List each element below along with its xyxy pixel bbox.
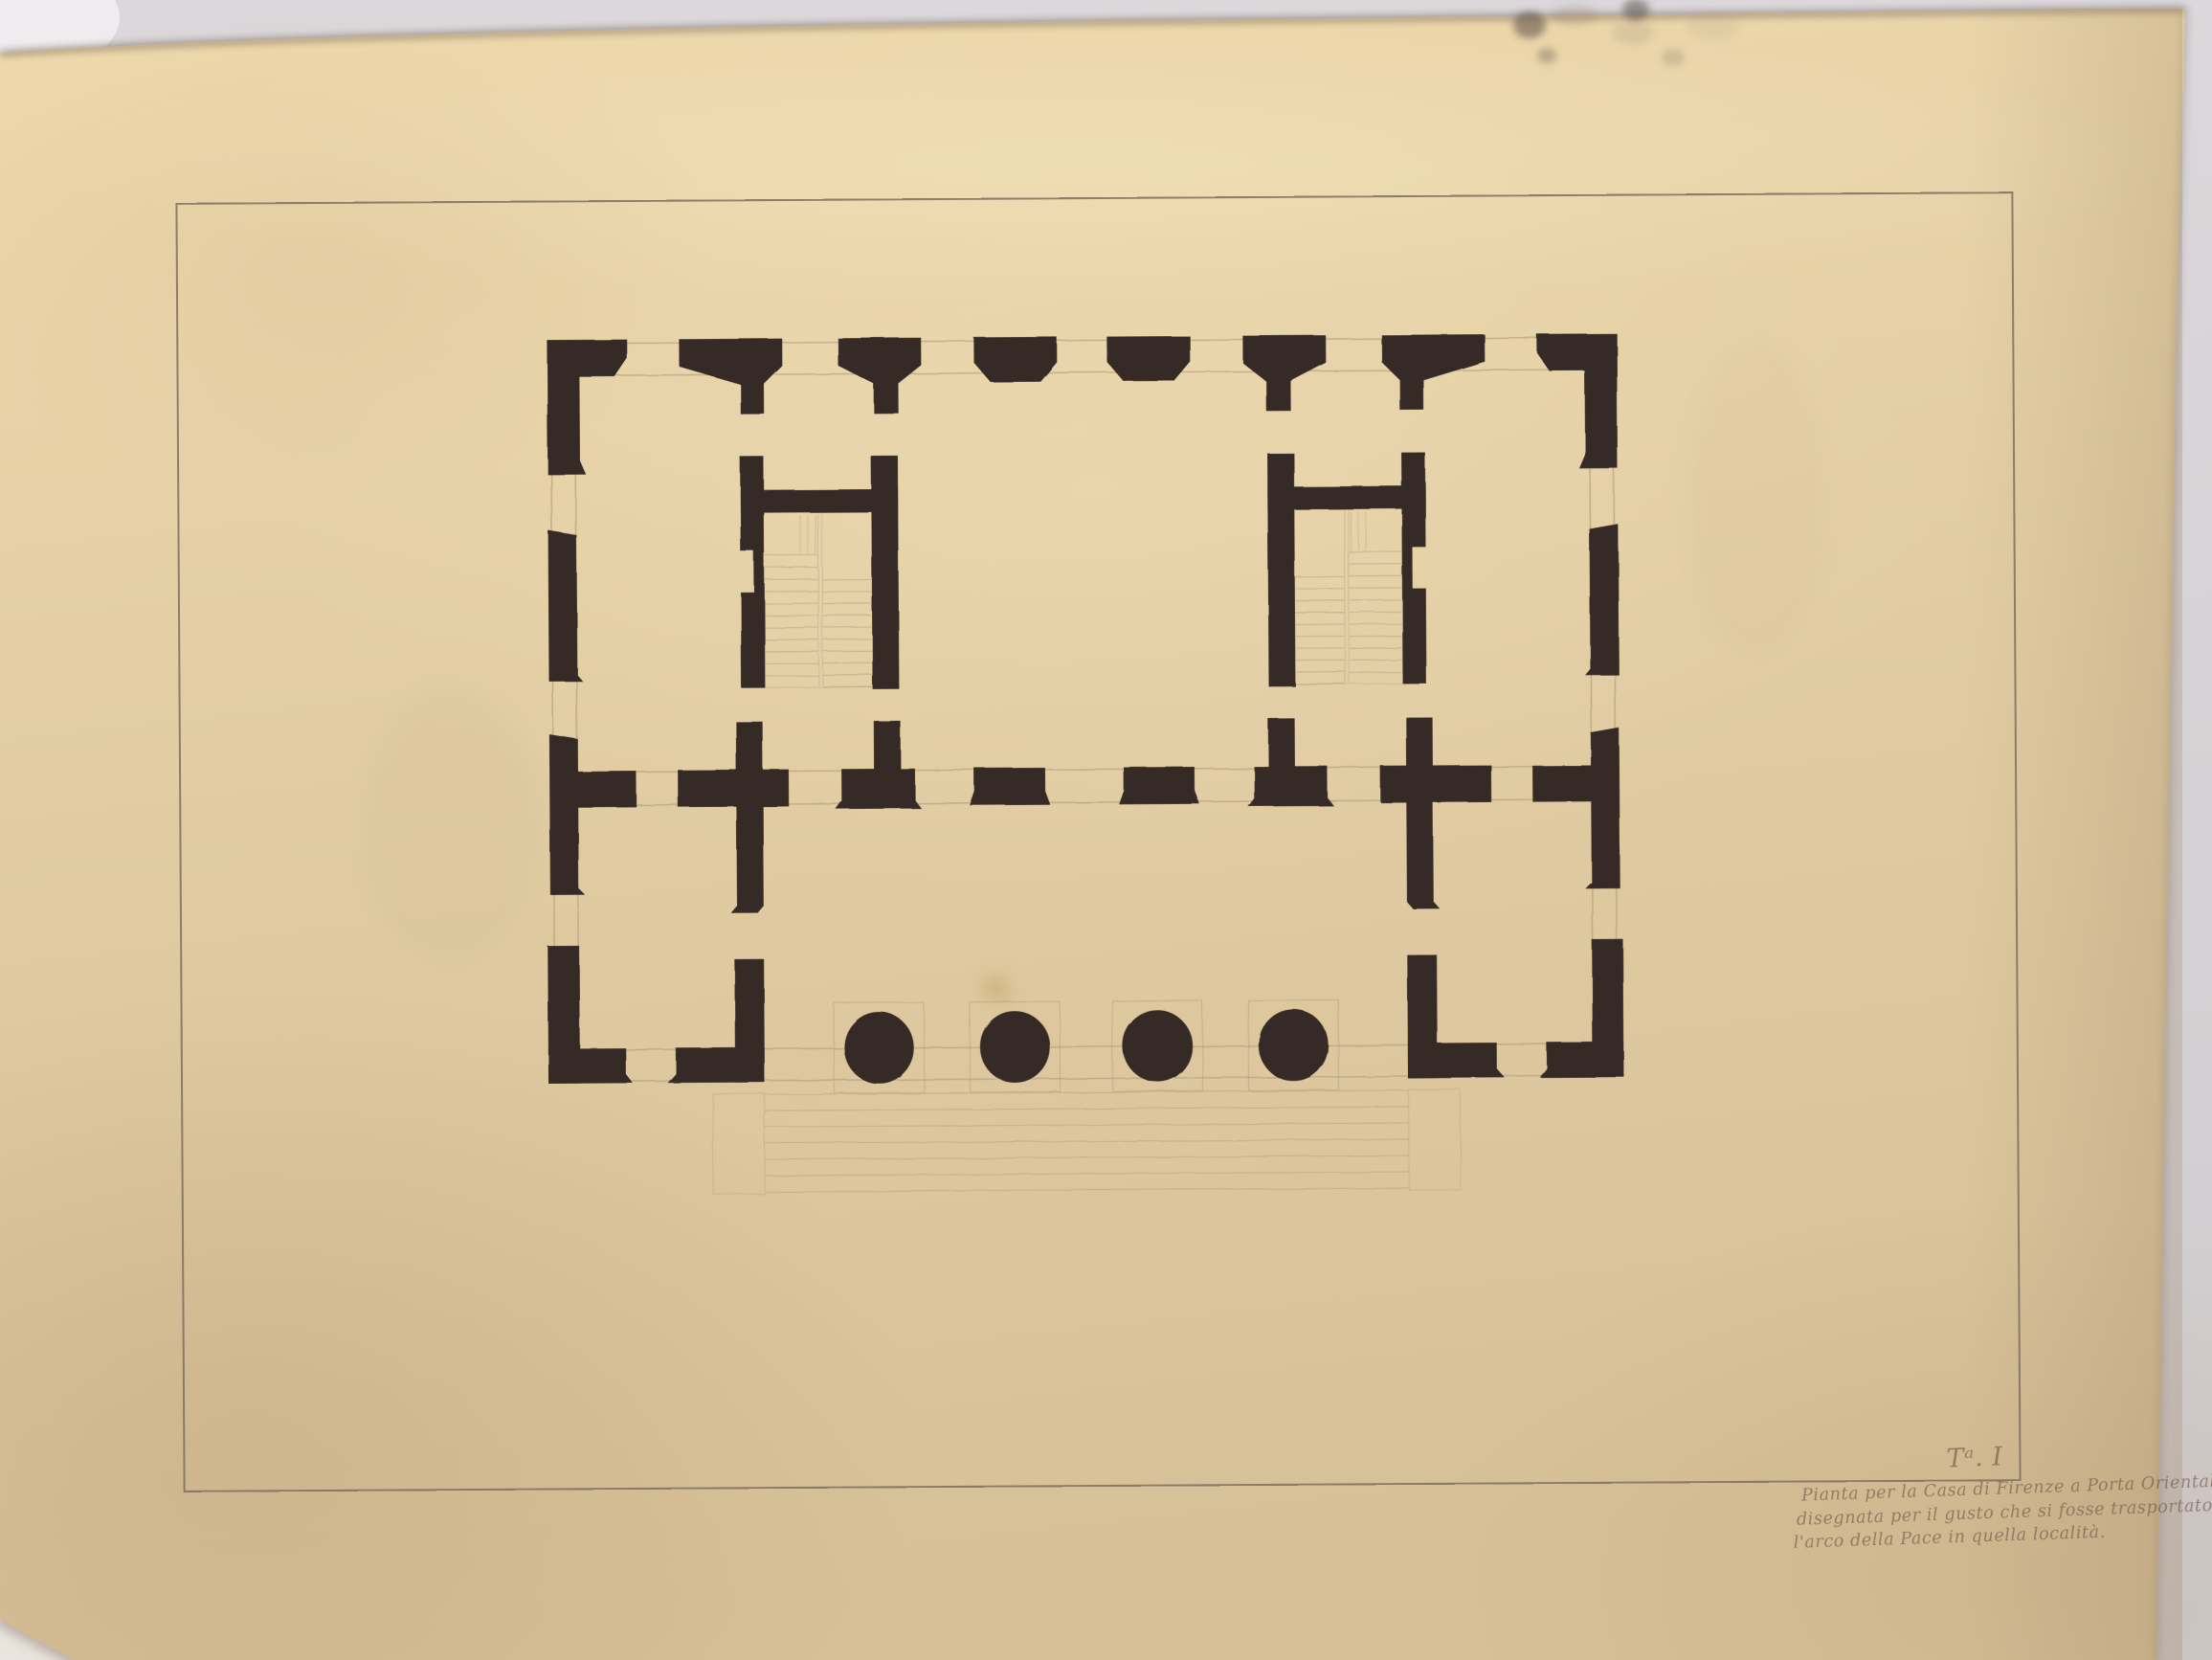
- portico-column: [980, 1011, 1049, 1082]
- scene: Tᵃ. I Pianta per la Casa di Firenze a Po…: [0, 0, 2212, 1660]
- portico-column: [844, 1012, 913, 1083]
- plate-number: Tᵃ. I: [1946, 1442, 2004, 1473]
- middle-wall-trapezoid-pier: [971, 768, 1050, 805]
- stair-core-crossbar: [741, 489, 898, 512]
- pier-top-4: [974, 337, 1057, 382]
- stair-door-jamb: [754, 550, 764, 593]
- photo-of-architectural-drawing: Tᵃ. I Pianta per la Casa di Firenze a Po…: [0, 0, 2212, 1660]
